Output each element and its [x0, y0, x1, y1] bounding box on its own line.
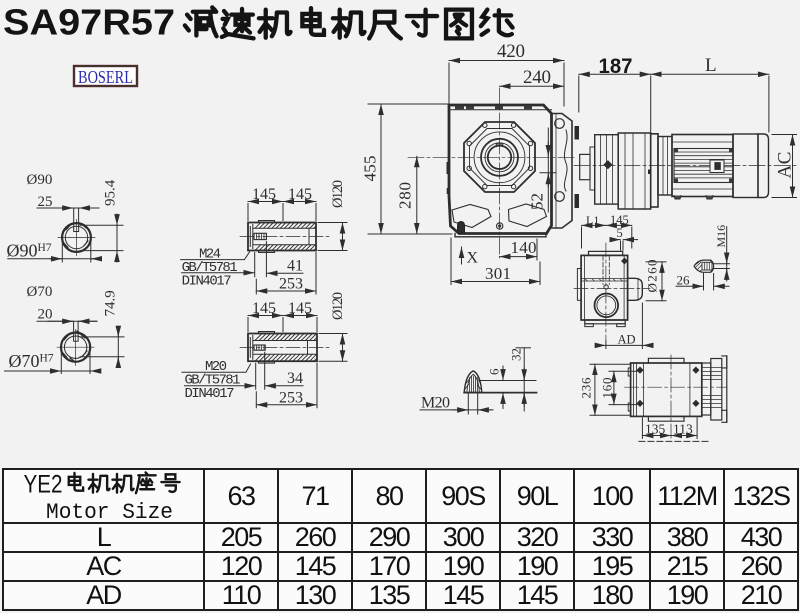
svg-text:32: 32	[509, 348, 524, 361]
svg-text:X: X	[467, 250, 479, 267]
svg-text:420: 420	[497, 41, 525, 62]
svg-text:95.4: 95.4	[103, 179, 119, 206]
svg-text:Ø260: Ø260	[645, 260, 660, 293]
svg-text:Ø90: Ø90	[27, 172, 53, 188]
svg-text:280: 280	[396, 182, 415, 209]
svg-text:Ø90H7: Ø90H7	[7, 241, 52, 261]
svg-text:DIN4017: DIN4017	[185, 386, 235, 402]
svg-text:34: 34	[287, 370, 303, 387]
svg-text:145: 145	[252, 186, 276, 203]
svg-text:YE2: YE2	[24, 471, 63, 499]
svg-text:BOSERL: BOSERL	[78, 67, 133, 87]
svg-text:253: 253	[279, 276, 303, 293]
svg-text:M20: M20	[421, 395, 450, 412]
svg-text:135: 135	[645, 422, 666, 437]
svg-text:M16: M16	[714, 225, 728, 248]
svg-text:52: 52	[528, 193, 547, 210]
svg-text:DIN4017: DIN4017	[182, 274, 232, 290]
svg-text:Ø120: Ø120	[330, 292, 346, 320]
svg-text:140: 140	[511, 238, 537, 257]
svg-text:145: 145	[252, 300, 276, 317]
svg-text:5: 5	[617, 226, 623, 240]
svg-text:Ø120: Ø120	[330, 180, 346, 208]
svg-text:240: 240	[523, 67, 551, 88]
svg-text:Ø70: Ø70	[27, 284, 53, 300]
svg-text:6: 6	[487, 368, 502, 375]
svg-text:160: 160	[599, 378, 614, 399]
svg-text:AD: AD	[618, 333, 636, 347]
svg-text:SA97R57: SA97R57	[3, 2, 175, 43]
svg-text:Ø70H7: Ø70H7	[9, 351, 54, 371]
svg-text:41: 41	[287, 258, 303, 275]
svg-text:26: 26	[677, 273, 691, 288]
svg-text:20: 20	[38, 307, 53, 323]
svg-text:253: 253	[279, 389, 303, 406]
svg-text:Motor Size: Motor Size	[46, 500, 173, 525]
svg-text:145: 145	[288, 300, 312, 317]
svg-text:455: 455	[361, 156, 380, 182]
svg-text:145: 145	[288, 186, 312, 203]
svg-text:301: 301	[485, 264, 511, 283]
svg-text:74.9: 74.9	[103, 290, 119, 316]
svg-text:113: 113	[673, 422, 693, 437]
svg-text:L: L	[705, 55, 717, 76]
svg-text:236: 236	[579, 377, 594, 399]
